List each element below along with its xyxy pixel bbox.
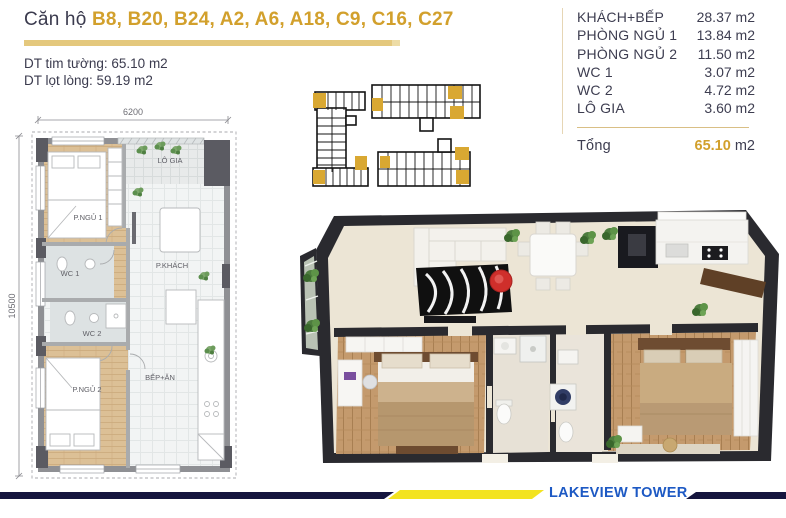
row-value: 28.37 — [697, 9, 732, 25]
room-label-wc1: WC 1 — [61, 269, 80, 278]
row-value: 3.60 — [704, 100, 731, 116]
footer-navy-bar-left — [0, 492, 394, 499]
red-armchair — [490, 270, 512, 292]
brochure-page: Căn hộ B8, B20, B24, A2, A6, A18, C9, C1… — [0, 0, 786, 518]
title-underline-bar-end — [392, 40, 400, 46]
table-row: WC 1 3.07 m2 — [563, 63, 755, 81]
room-label-lo-gia: LÔ GIA — [157, 156, 182, 165]
row-value: 4.72 — [704, 82, 731, 98]
area-summary: DT tim tường: 65.10 m2 DT lọt lòng: 59.1… — [24, 55, 168, 89]
row-label: PHÒNG NGỦ 1 — [563, 26, 677, 44]
area-gross-line: DT tim tường: 65.10 m2 — [24, 55, 168, 72]
render-3d — [298, 204, 786, 496]
row-label: LÔ GIA — [563, 99, 625, 117]
row-unit: m2 — [736, 82, 755, 98]
table-row: PHÒNG NGỦ 2 11.50 m2 — [563, 45, 755, 63]
tv — [424, 316, 476, 323]
row-label: WC 1 — [563, 63, 613, 81]
room-label-wc2: WC 2 — [83, 329, 102, 338]
table-total-row: Tổng 65.10 m2 — [563, 135, 755, 157]
row-unit: m2 — [736, 46, 755, 62]
row-unit: m2 — [736, 9, 755, 25]
total-value: 65.10 — [695, 138, 731, 154]
table-total-divider — [577, 127, 749, 128]
row-label: KHÁCH+BẾP — [563, 8, 664, 26]
room-label-bedroom2: P.NGỦ 2 — [72, 385, 101, 394]
table-row: LÔ GIA 3.60 m2 — [563, 99, 755, 117]
table-row: WC 2 4.72 m2 — [563, 81, 755, 99]
title-prefix: Căn hộ — [24, 9, 92, 30]
row-label: PHÒNG NGỦ 2 — [563, 45, 677, 63]
room-label-bedroom1: P.NGỦ 1 — [73, 213, 102, 222]
row-value: 11.50 — [698, 46, 732, 62]
table-row: PHÒNG NGỦ 1 13.84 m2 — [563, 26, 755, 44]
row-value: 3.07 — [704, 64, 731, 80]
footer-yellow-bar — [388, 490, 544, 499]
room-area-table: KHÁCH+BẾP 28.37 m2 PHÒNG NGỦ 1 13.84 m2 … — [563, 8, 755, 157]
site-key-plan — [302, 80, 564, 200]
row-unit: m2 — [736, 100, 755, 116]
row-value: 13.84 — [697, 27, 732, 43]
row-unit: m2 — [736, 27, 755, 43]
room-label-kitchen: BẾP+ĂN — [145, 372, 175, 382]
row-label: WC 2 — [563, 81, 613, 99]
total-unit: m2 — [735, 138, 755, 154]
footer-navy-bar-right — [686, 492, 786, 499]
total-label: Tổng — [563, 135, 611, 157]
table-row: KHÁCH+BẾP 28.37 m2 — [563, 8, 755, 26]
dimension-width — [35, 116, 231, 124]
row-unit: m2 — [736, 64, 755, 80]
footer-brand: LAKEVIEW TOWER — [549, 485, 683, 501]
title-underline-bar — [24, 40, 392, 46]
room-label-living: P.KHÁCH — [156, 261, 188, 270]
page-title: Căn hộ B8, B20, B24, A2, A6, A18, C9, C1… — [24, 9, 454, 31]
dim-height-label: 10500 — [8, 293, 17, 318]
floor-plan-2d: 6200 10500 — [8, 104, 248, 486]
area-net-line: DT lọt lòng: 59.19 m2 — [24, 72, 168, 89]
title-unit-list: B8, B20, B24, A2, A6, A18, C9, C16, C27 — [92, 9, 454, 30]
dim-width-label: 6200 — [123, 107, 143, 117]
